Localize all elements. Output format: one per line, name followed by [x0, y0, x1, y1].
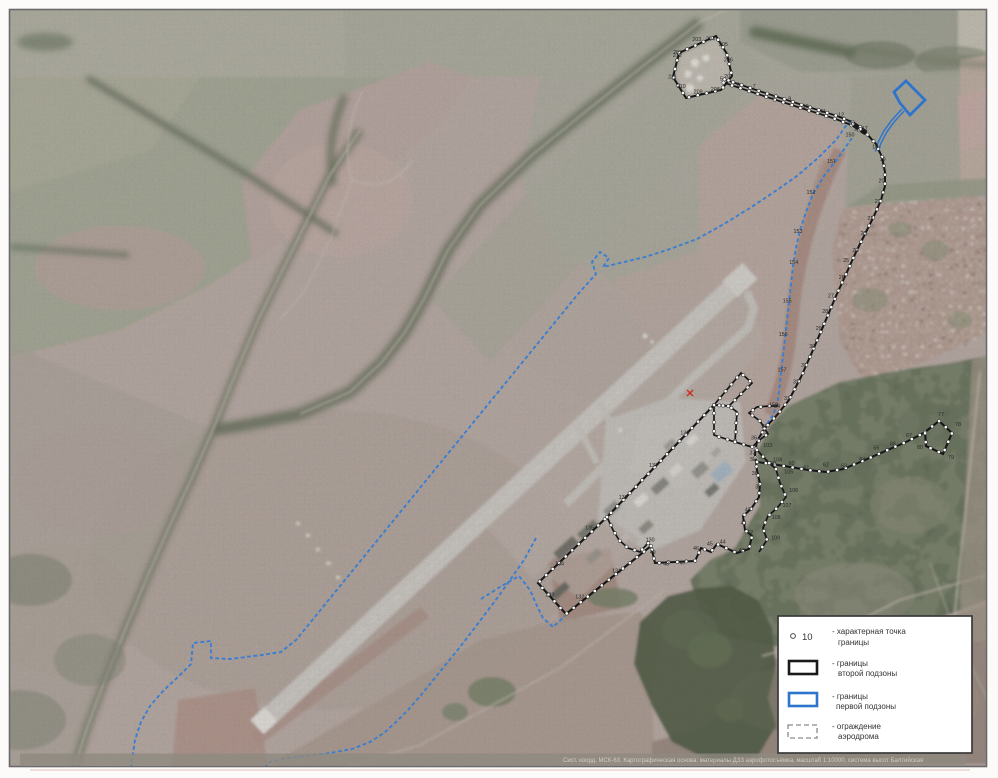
svg-text:27: 27	[828, 293, 834, 299]
svg-text:158: 158	[769, 403, 778, 409]
svg-text:155: 155	[783, 299, 792, 305]
svg-text:первой подзоны: первой подзоны	[836, 702, 896, 711]
svg-text:22: 22	[867, 216, 873, 222]
svg-text:24: 24	[852, 248, 858, 254]
svg-text:107: 107	[783, 503, 792, 509]
svg-text:41: 41	[741, 520, 747, 526]
svg-text:16: 16	[848, 121, 854, 127]
svg-text:134: 134	[555, 561, 564, 567]
svg-text:48: 48	[663, 561, 669, 567]
svg-text:205: 205	[719, 42, 728, 48]
svg-text:6: 6	[737, 83, 740, 89]
svg-text:80: 80	[917, 445, 923, 451]
svg-text:13: 13	[854, 127, 860, 133]
svg-text:45: 45	[707, 542, 713, 548]
svg-text:23: 23	[861, 231, 867, 237]
svg-text:61: 61	[803, 465, 809, 471]
svg-text:130: 130	[646, 537, 655, 543]
svg-text:границы: границы	[838, 638, 869, 647]
svg-text:137: 137	[649, 463, 658, 469]
svg-text:- границы: - границы	[832, 692, 868, 701]
svg-text:154: 154	[789, 260, 798, 266]
svg-text:156: 156	[779, 332, 788, 338]
svg-text:78: 78	[955, 422, 961, 428]
svg-text:105: 105	[784, 470, 793, 476]
svg-text:38: 38	[752, 471, 758, 477]
svg-text:второй подзоны: второй подзоны	[838, 669, 897, 678]
svg-text:7: 7	[753, 84, 756, 90]
svg-text:212: 212	[673, 53, 682, 59]
svg-text:10: 10	[802, 632, 813, 643]
svg-text:66: 66	[890, 441, 896, 447]
svg-text:103: 103	[763, 443, 772, 449]
svg-text:104: 104	[773, 458, 782, 464]
svg-text:8: 8	[772, 96, 775, 102]
svg-text:150: 150	[846, 133, 855, 139]
svg-text:44: 44	[720, 540, 726, 546]
svg-text:106: 106	[789, 488, 798, 494]
svg-text:28: 28	[822, 309, 828, 315]
svg-text:- характерная точка: - характерная точка	[832, 627, 906, 636]
svg-text:21: 21	[875, 199, 881, 205]
svg-text:43: 43	[739, 548, 745, 554]
svg-text:210: 210	[677, 84, 686, 90]
svg-text:151: 151	[827, 159, 836, 165]
svg-text:32: 32	[793, 380, 799, 386]
svg-text:152: 152	[807, 190, 816, 196]
svg-text:11: 11	[820, 109, 826, 115]
svg-text:204: 204	[706, 37, 715, 43]
svg-text:135: 135	[585, 526, 594, 532]
svg-text:36: 36	[751, 436, 757, 442]
svg-text:65: 65	[873, 445, 879, 451]
svg-text:5: 5	[720, 76, 723, 82]
svg-text:49: 49	[650, 550, 656, 556]
svg-text:Сист. коорд. МСК-63. Картограф: Сист. коорд. МСК-63. Картографическая ос…	[563, 757, 923, 764]
svg-text:64: 64	[859, 457, 865, 463]
svg-text:10: 10	[803, 104, 809, 110]
svg-text:42: 42	[747, 530, 753, 536]
svg-text:46: 46	[693, 546, 699, 552]
svg-text:26: 26	[839, 275, 845, 281]
svg-text:35: 35	[761, 424, 767, 430]
svg-text:131: 131	[612, 568, 621, 574]
svg-text:39: 39	[755, 485, 761, 491]
svg-text:133: 133	[545, 593, 554, 599]
svg-text:109: 109	[771, 536, 780, 542]
svg-text:30: 30	[809, 344, 815, 350]
svg-text:157: 157	[778, 367, 787, 373]
svg-text:17: 17	[862, 126, 868, 132]
svg-text:138: 138	[680, 431, 689, 437]
svg-text:19: 19	[880, 157, 886, 163]
svg-text:18: 18	[872, 145, 878, 151]
svg-text:33: 33	[784, 396, 790, 402]
svg-text:108: 108	[772, 515, 781, 521]
svg-text:211: 211	[668, 75, 677, 81]
svg-text:62: 62	[823, 463, 829, 469]
svg-text:47: 47	[680, 560, 686, 566]
svg-text:40: 40	[745, 508, 751, 514]
svg-text:77: 77	[938, 412, 944, 418]
svg-text:63: 63	[841, 464, 847, 470]
svg-text:37: 37	[750, 450, 756, 456]
svg-text:аэродрома: аэродрома	[838, 732, 879, 741]
svg-text:206: 206	[724, 58, 733, 64]
svg-text:25: 25	[843, 258, 849, 264]
svg-text:20: 20	[879, 179, 885, 185]
svg-text:9: 9	[788, 96, 791, 102]
svg-text:60: 60	[789, 461, 795, 467]
svg-text:209: 209	[694, 89, 703, 95]
svg-text:29: 29	[816, 326, 822, 332]
svg-text:- границы: - границы	[832, 659, 868, 668]
svg-text:31: 31	[801, 363, 807, 369]
svg-text:208: 208	[711, 87, 720, 93]
svg-text:12: 12	[838, 113, 844, 119]
svg-text:- ограждение: - ограждение	[832, 722, 882, 731]
svg-text:136: 136	[619, 495, 628, 501]
svg-text:79: 79	[948, 455, 954, 461]
svg-text:153: 153	[794, 229, 803, 235]
svg-text:58: 58	[750, 457, 756, 463]
svg-text:207: 207	[724, 74, 733, 80]
svg-text:132: 132	[575, 595, 584, 601]
svg-text:203: 203	[692, 37, 701, 43]
svg-text:67: 67	[906, 433, 912, 439]
